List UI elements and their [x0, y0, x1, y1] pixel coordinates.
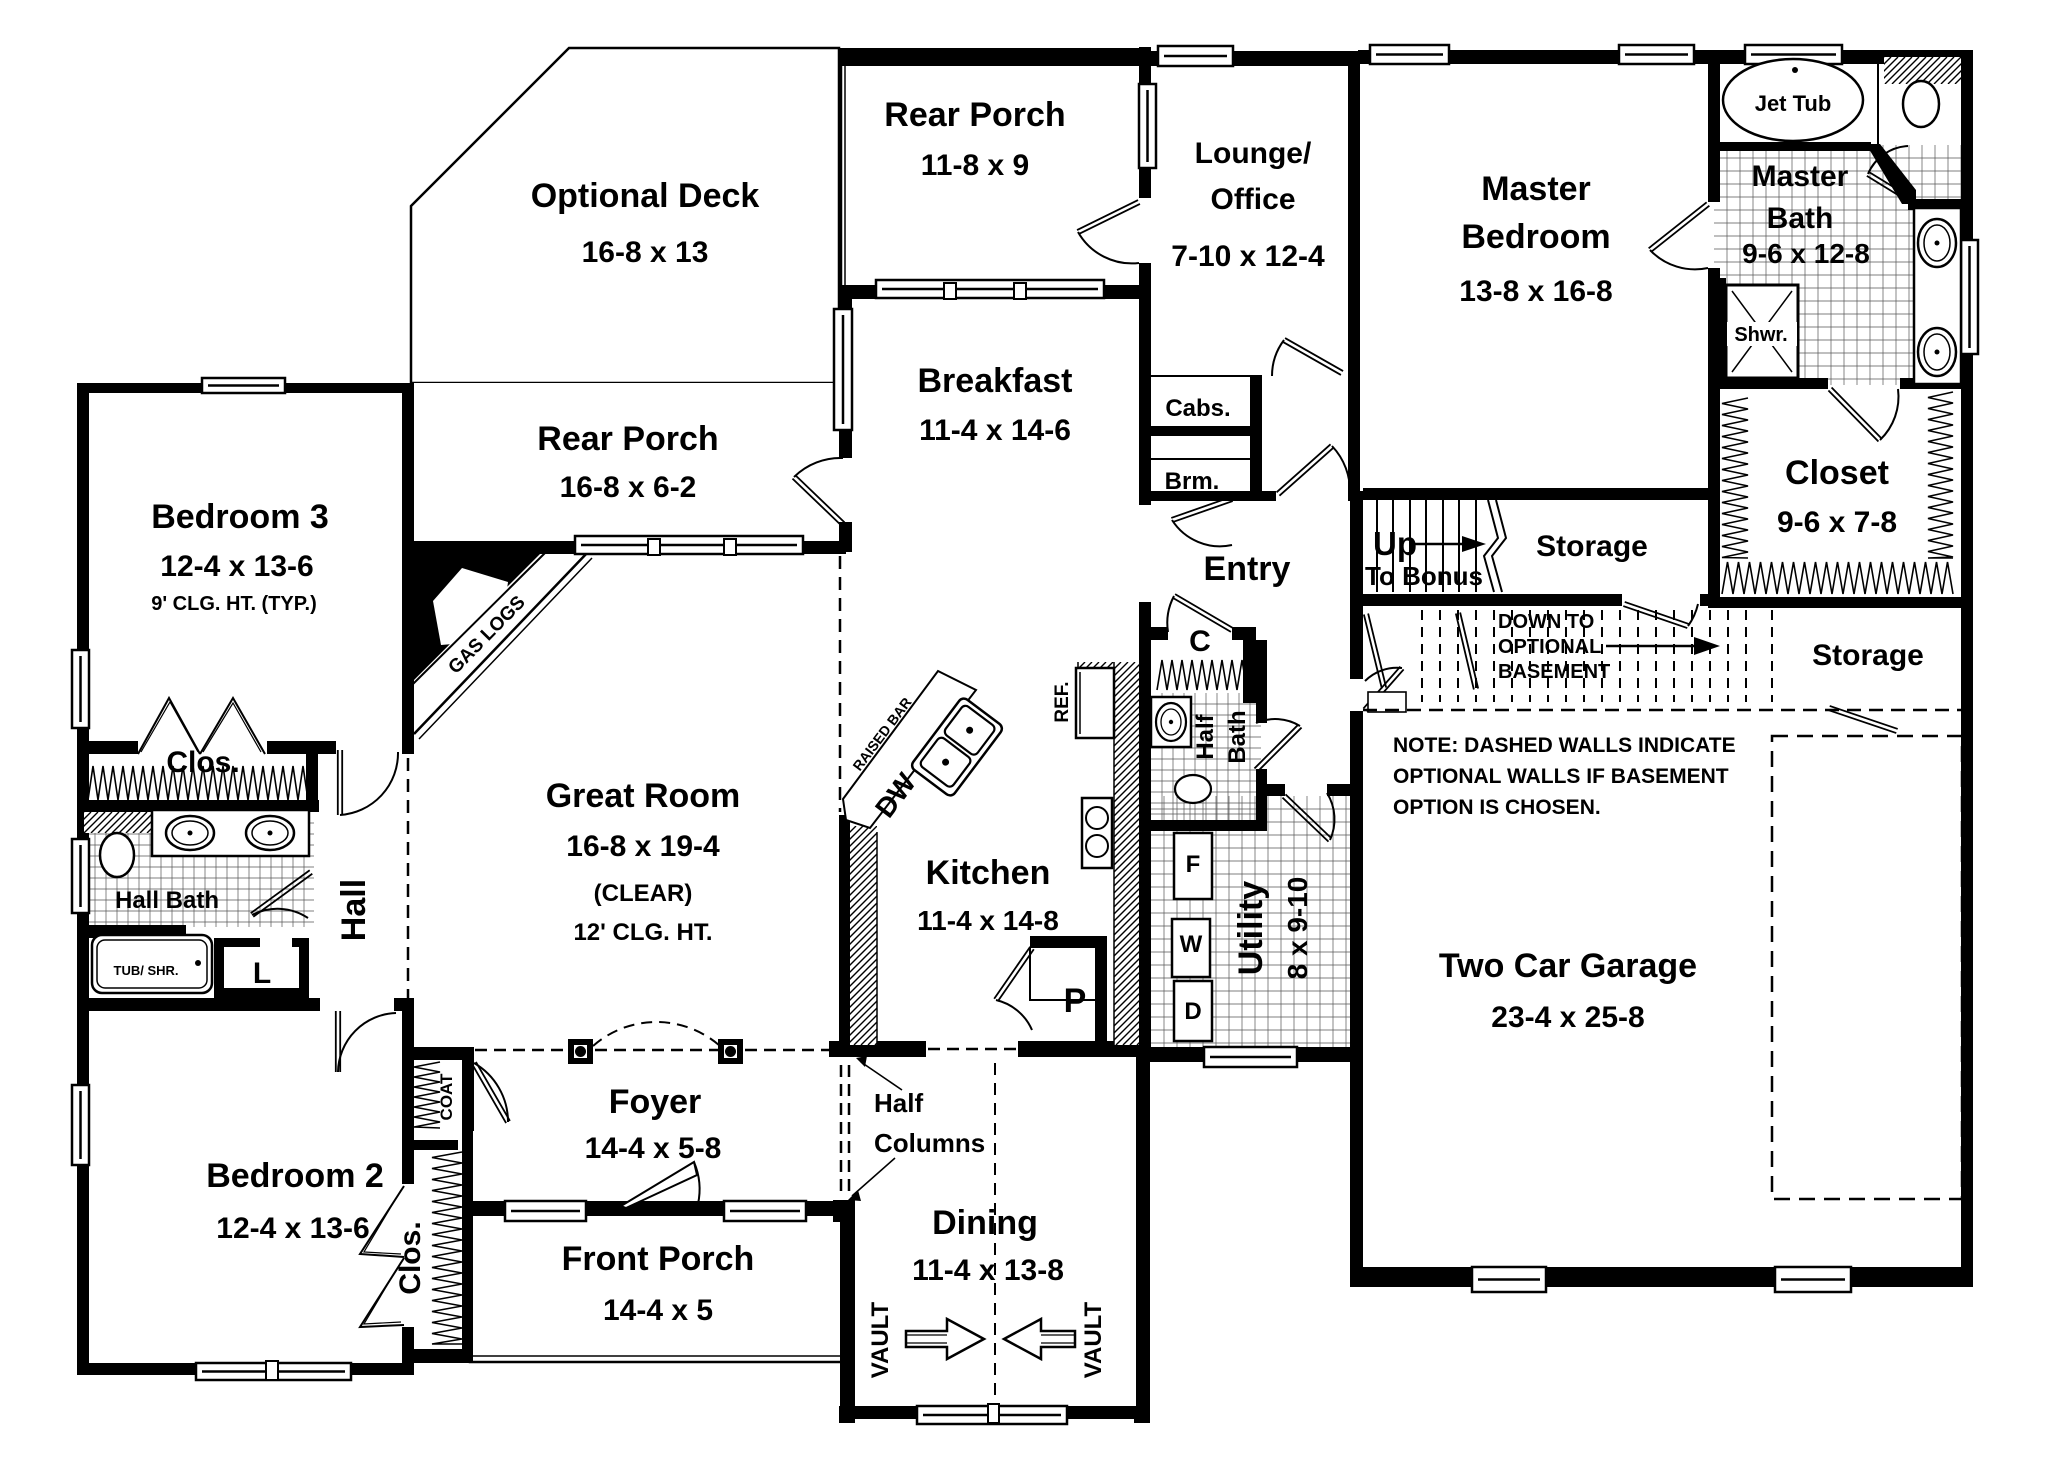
svg-text:TUB/ SHR.: TUB/ SHR.: [114, 963, 179, 978]
svg-text:VAULT: VAULT: [867, 1301, 894, 1378]
svg-text:11-8 x 9: 11-8 x 9: [921, 149, 1029, 182]
svg-text:12-4 x 13-6: 12-4 x 13-6: [160, 550, 313, 583]
svg-text:Clos.: Clos.: [394, 1221, 427, 1294]
svg-text:Master: Master: [1752, 160, 1849, 193]
svg-text:Storage: Storage: [1812, 639, 1924, 672]
svg-text:P: P: [1064, 982, 1087, 1020]
svg-text:Columns: Columns: [874, 1128, 985, 1158]
svg-text:Closet: Closet: [1785, 454, 1889, 492]
svg-text:OPTION IS CHOSEN.: OPTION IS CHOSEN.: [1393, 796, 1601, 819]
svg-text:OPTIONAL: OPTIONAL: [1498, 636, 1601, 658]
svg-text:Front Porch: Front Porch: [562, 1240, 755, 1278]
svg-text:23-4 x 25-8: 23-4 x 25-8: [1491, 1001, 1644, 1034]
svg-text:Bedroom: Bedroom: [1461, 218, 1610, 256]
svg-text:Great Room: Great Room: [546, 777, 741, 815]
svg-text:Kitchen: Kitchen: [926, 854, 1051, 892]
svg-text:Jet Tub: Jet Tub: [1755, 91, 1832, 116]
svg-text:To Bonus: To Bonus: [1365, 561, 1483, 591]
svg-text:Foyer: Foyer: [609, 1083, 702, 1121]
svg-text:Storage: Storage: [1536, 530, 1648, 563]
svg-text:14-4 x 5-8: 14-4 x 5-8: [585, 1132, 722, 1165]
svg-text:14-4 x 5: 14-4 x 5: [603, 1294, 713, 1327]
svg-text:12' CLG. HT.: 12' CLG. HT.: [573, 919, 712, 946]
svg-text:BASEMENT: BASEMENT: [1498, 661, 1610, 683]
svg-text:F: F: [1186, 851, 1201, 878]
svg-text:9-6 x 7-8: 9-6 x 7-8: [1777, 506, 1897, 539]
svg-text:DOWN TO: DOWN TO: [1498, 611, 1594, 633]
svg-text:Office: Office: [1210, 183, 1295, 216]
svg-text:11-4 x 13-8: 11-4 x 13-8: [912, 1254, 1064, 1287]
svg-text:Half: Half: [874, 1088, 923, 1118]
svg-text:OPTIONAL WALLS IF BASEMENT: OPTIONAL WALLS IF BASEMENT: [1393, 765, 1729, 788]
svg-text:Bath: Bath: [1224, 710, 1251, 763]
svg-text:13-8 x 16-8: 13-8 x 16-8: [1459, 275, 1612, 308]
svg-text:16-8 x 6-2: 16-8 x 6-2: [560, 471, 697, 504]
svg-text:C: C: [1189, 625, 1211, 658]
svg-text:Master: Master: [1481, 170, 1591, 208]
svg-text:Hall Bath: Hall Bath: [115, 887, 219, 914]
svg-text:(CLEAR): (CLEAR): [594, 880, 693, 907]
svg-text:W: W: [1180, 931, 1203, 958]
svg-text:Up: Up: [1373, 525, 1417, 562]
svg-text:Hall: Hall: [335, 879, 373, 941]
svg-text:Bath: Bath: [1767, 202, 1834, 235]
svg-text:REF.: REF.: [1052, 681, 1073, 722]
svg-text:NOTE: DASHED WALLS INDICATE: NOTE: DASHED WALLS INDICATE: [1393, 734, 1736, 757]
svg-text:12-4 x 13-6: 12-4 x 13-6: [216, 1212, 369, 1245]
svg-text:Rear Porch: Rear Porch: [537, 420, 718, 458]
svg-text:Brm.: Brm.: [1165, 468, 1220, 495]
svg-text:Shwr.: Shwr.: [1734, 324, 1787, 346]
svg-text:Bedroom 2: Bedroom 2: [206, 1157, 384, 1195]
svg-text:Bedroom 3: Bedroom 3: [151, 498, 329, 536]
svg-text:16-8 x 13: 16-8 x 13: [582, 236, 709, 269]
svg-text:Utility: Utility: [1232, 881, 1270, 976]
svg-text:9' CLG. HT. (TYP.): 9' CLG. HT. (TYP.): [151, 593, 317, 615]
svg-text:Entry: Entry: [1204, 550, 1291, 588]
svg-text:16-8 x 19-4: 16-8 x 19-4: [566, 830, 720, 863]
svg-text:11-4 x 14-8: 11-4 x 14-8: [917, 905, 1059, 936]
svg-text:Cabs.: Cabs.: [1165, 395, 1230, 422]
svg-text:Lounge/: Lounge/: [1195, 137, 1312, 170]
svg-text:D: D: [1184, 998, 1201, 1025]
svg-text:L: L: [253, 957, 271, 990]
svg-text:Rear Porch: Rear Porch: [884, 96, 1065, 134]
svg-text:11-4 x 14-6: 11-4 x 14-6: [919, 414, 1071, 447]
svg-text:Optional Deck: Optional Deck: [531, 177, 760, 215]
svg-text:9-6 x 12-8: 9-6 x 12-8: [1742, 238, 1870, 269]
svg-text:Half: Half: [1192, 713, 1219, 759]
svg-text:7-10 x 12-4: 7-10 x 12-4: [1171, 240, 1325, 273]
svg-text:Two Car Garage: Two Car Garage: [1439, 947, 1697, 985]
svg-text:Clos.: Clos.: [166, 746, 239, 779]
svg-text:Dining: Dining: [932, 1204, 1038, 1242]
svg-text:COAT: COAT: [437, 1073, 456, 1121]
svg-text:8 x 9-10: 8 x 9-10: [1282, 877, 1313, 980]
svg-text:VAULT: VAULT: [1080, 1301, 1107, 1378]
svg-text:Breakfast: Breakfast: [918, 362, 1073, 400]
